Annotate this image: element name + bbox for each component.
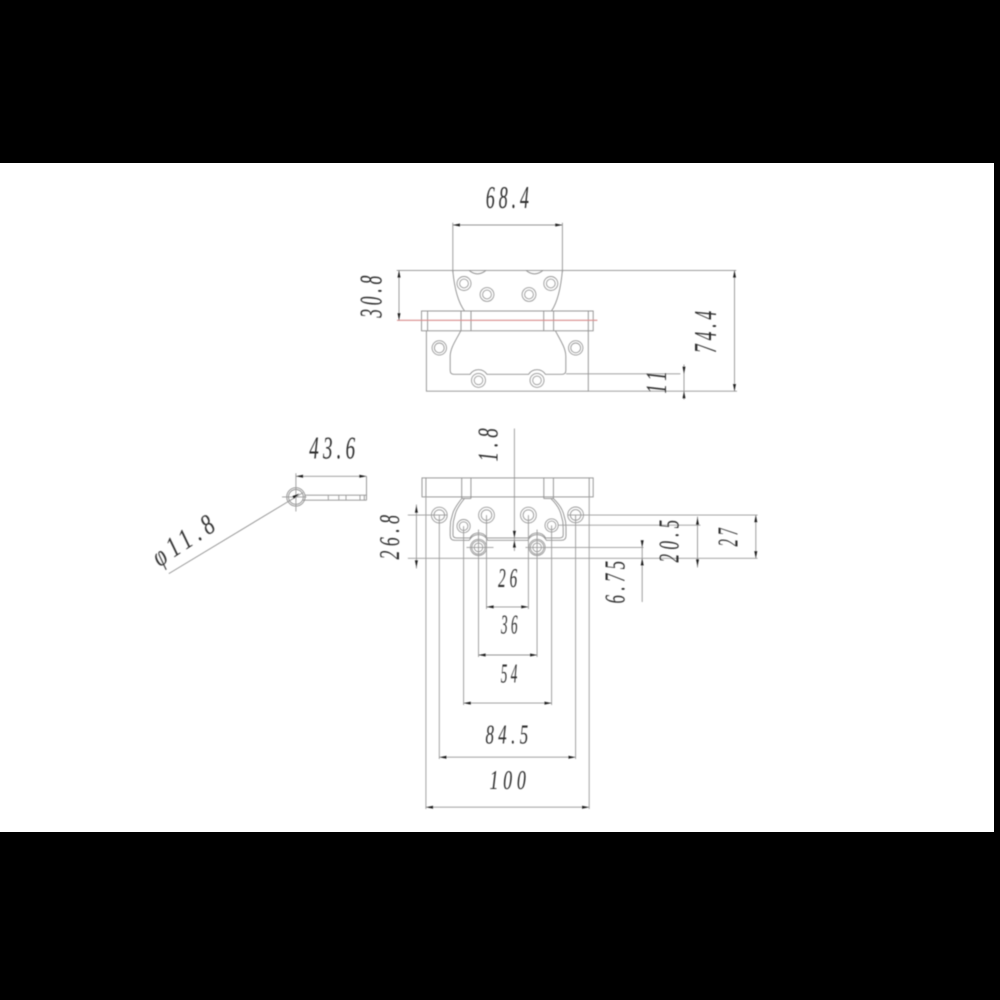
svg-text:20.5: 20.5 bbox=[655, 516, 686, 563]
svg-text:27: 27 bbox=[714, 525, 745, 547]
svg-text:43.6: 43.6 bbox=[309, 429, 359, 465]
svg-text:26: 26 bbox=[498, 563, 521, 593]
svg-text:6.75: 6.75 bbox=[601, 557, 632, 604]
svg-text:84.5: 84.5 bbox=[486, 720, 533, 750]
svg-text:1.8: 1.8 bbox=[474, 424, 505, 462]
svg-text:36: 36 bbox=[501, 610, 521, 640]
svg-text:30.8: 30.8 bbox=[353, 272, 389, 319]
svg-text:74.4: 74.4 bbox=[687, 307, 723, 353]
svg-text:54: 54 bbox=[501, 659, 521, 689]
svg-text:100: 100 bbox=[490, 765, 531, 795]
svg-text:26.8: 26.8 bbox=[375, 511, 406, 560]
svg-text:68.4: 68.4 bbox=[486, 179, 533, 215]
svg-text:11: 11 bbox=[640, 367, 673, 394]
